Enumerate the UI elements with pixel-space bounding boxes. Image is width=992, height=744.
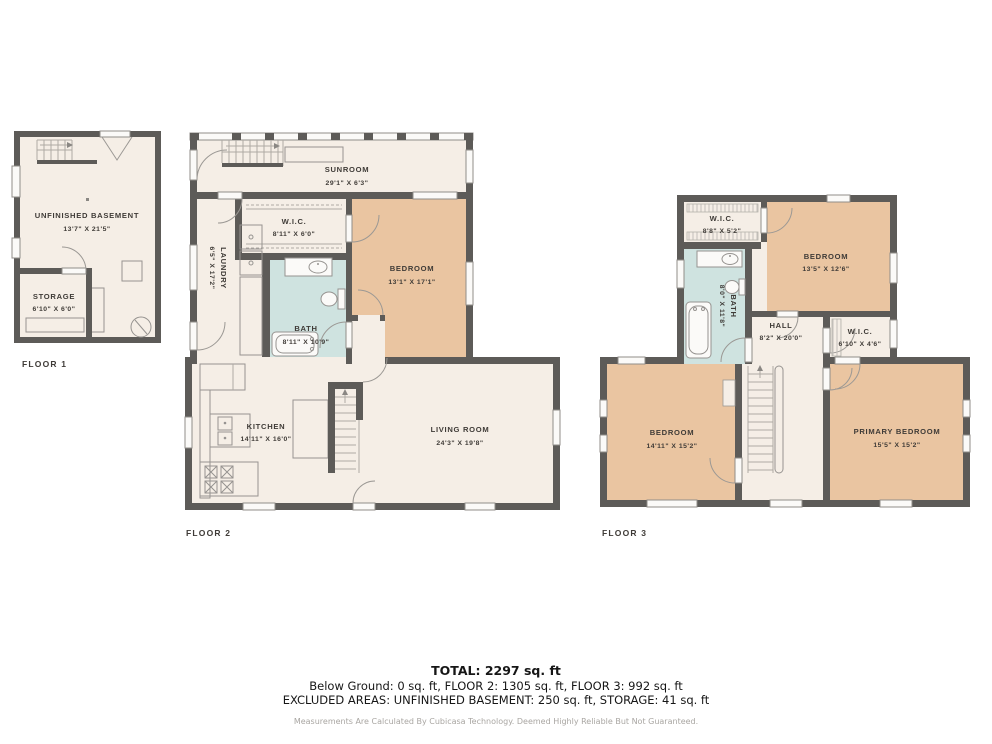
basement-entry-opening <box>100 131 130 137</box>
floor-2-plan: SUNROOM 29'1" X 6'3" W.I.C. 8'11" X 6'0"… <box>180 125 570 545</box>
room-label-laundry-dims: 6'5" X 17'2" <box>208 247 215 290</box>
room-label-laundry-name: LAUNDRY <box>219 247 228 289</box>
floor-2-label: FLOOR 2 <box>186 528 231 538</box>
room-label-storage-name: STORAGE <box>33 292 75 301</box>
sink-vanity-icon <box>697 251 742 267</box>
room-label-bedroom-top-dims: 13'5" X 12'6" <box>802 266 849 273</box>
room-label-bedroom-low-dims: 14'11" X 15'2" <box>646 443 697 450</box>
room-label-wic1-dims: 8'8" X 5'2" <box>703 228 742 235</box>
room-label-primary-dims: 15'5" X 15'2" <box>873 442 920 449</box>
room-label-wic2-dims: 6'10" X 4'6" <box>839 341 882 348</box>
room-label-hall-dims: 8'2" X 20'0" <box>760 335 803 342</box>
ceiling-marker <box>86 198 89 201</box>
room-label-kitchen-name: KITCHEN <box>247 422 286 431</box>
room-label-bedroom-low-name: BEDROOM <box>650 428 695 437</box>
room-label-bath-dims: 8'11" X 10'9" <box>283 339 330 346</box>
floor-breakdown: Below Ground: 0 sq. ft, FLOOR 2: 1305 sq… <box>0 680 992 694</box>
room-label-bath-name: BATH <box>294 324 317 333</box>
floor-1-plan: UNFINISHED BASEMENT 13'7" X 21'5" STORAG… <box>10 122 170 377</box>
floor-3-label: FLOOR 3 <box>602 528 647 538</box>
room-label-bedroom-name: BEDROOM <box>390 264 435 273</box>
room-label-primary-name: PRIMARY BEDROOM <box>854 427 941 436</box>
floor-3-plan: W.I.C. 8'8" X 5'2" BEDROOM 13'5" X 12'6"… <box>595 188 985 518</box>
room-label-hall-name: HALL <box>769 321 792 330</box>
room-label-bath-name: BATH <box>729 294 738 317</box>
bathtub-icon <box>686 302 711 358</box>
room-label-sunroom-dims: 29'1" X 6'3" <box>326 180 369 187</box>
disclaimer: Measurements Are Calculated By Cubicasa … <box>0 717 992 726</box>
sink-vanity-icon <box>285 258 332 276</box>
window-icon <box>12 166 20 197</box>
room-label-storage-dims: 6'10" X 6'0" <box>33 306 76 313</box>
room-label-basement-dims: 13'7" X 21'5" <box>63 226 110 233</box>
room-label-living-name: LIVING ROOM <box>431 425 490 434</box>
room-label-basement-name: UNFINISHED BASEMENT <box>35 211 139 220</box>
excluded-areas: EXCLUDED AREAS: UNFINISHED BASEMENT: 250… <box>0 694 992 708</box>
room-label-sunroom-name: SUNROOM <box>325 165 370 174</box>
storage-door-opening <box>62 268 86 274</box>
room-label-wic1-name: W.I.C. <box>710 214 735 223</box>
chimney-notch <box>723 380 735 406</box>
toilet-icon <box>725 279 745 295</box>
floorplan-page: UNFINISHED BASEMENT 13'7" X 21'5" STORAG… <box>0 0 992 744</box>
room-label-bedroom-dims: 13'1" X 17'1" <box>388 279 435 286</box>
window-icon <box>12 238 20 258</box>
room-label-kitchen-dims: 14'11" X 16'0" <box>240 436 291 443</box>
total-area: TOTAL: 2297 sq. ft <box>0 663 992 678</box>
floor-1-label: FLOOR 1 <box>22 359 67 369</box>
room-label-bedroom-top-name: BEDROOM <box>804 252 849 261</box>
room-label-bath-dims: 8'0" X 11'8" <box>718 285 725 328</box>
room-label-wic2-name: W.I.C. <box>848 327 873 336</box>
area-summary: TOTAL: 2297 sq. ft Below Ground: 0 sq. f… <box>0 663 992 726</box>
room-label-wic-name: W.I.C. <box>282 217 307 226</box>
room-label-wic-dims: 8'11" X 6'0" <box>273 231 316 238</box>
room-label-living-dims: 24'3" X 19'8" <box>436 440 483 447</box>
